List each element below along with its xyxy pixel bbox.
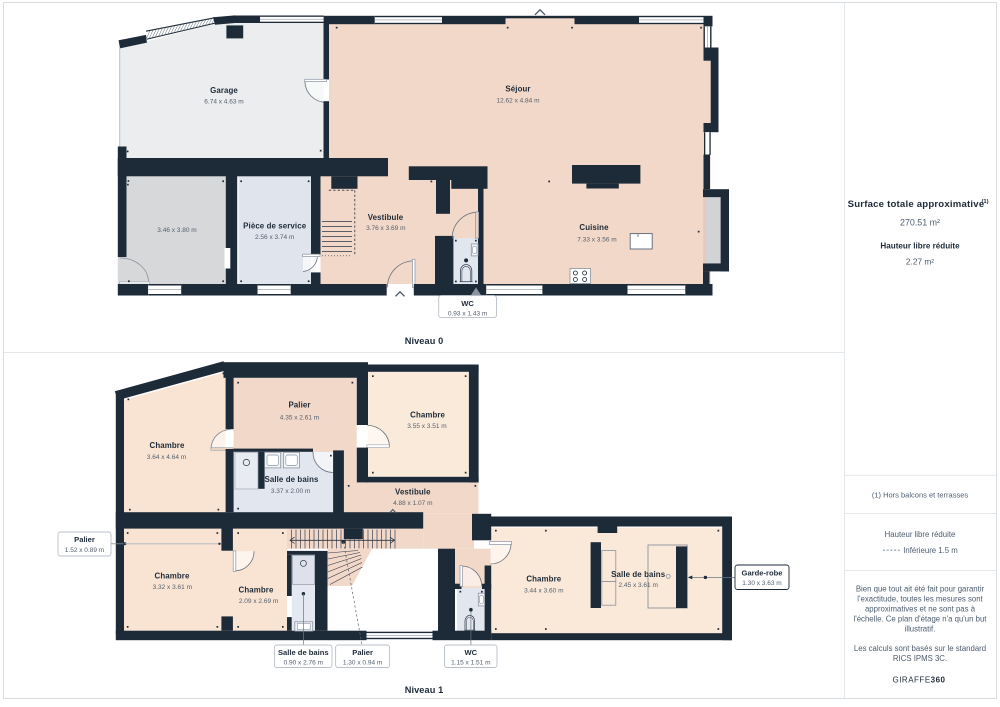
- svg-text:Pièce de service: Pièce de service: [243, 222, 307, 231]
- svg-text:Cuisine: Cuisine: [579, 223, 609, 232]
- svg-text:Palier: Palier: [288, 401, 310, 410]
- svg-text:4.88 x 1.07 m: 4.88 x 1.07 m: [393, 500, 432, 507]
- svg-text:3.46 x 3.80 m: 3.46 x 3.80 m: [157, 227, 196, 234]
- svg-text:Hauteur libre réduite: Hauteur libre réduite: [880, 242, 960, 251]
- svg-text:WC: WC: [461, 299, 474, 308]
- svg-text:6.74 x 4.63 m: 6.74 x 4.63 m: [204, 99, 243, 106]
- svg-text:Salle de bains: Salle de bains: [264, 475, 319, 484]
- svg-text:Hauteur libre réduite: Hauteur libre réduite: [885, 530, 956, 539]
- svg-text:2.27 m²: 2.27 m²: [906, 257, 934, 267]
- svg-text:270.51 m²: 270.51 m²: [900, 218, 940, 228]
- svg-text:Séjour: Séjour: [505, 85, 530, 94]
- svg-text:2.56 x 3.74 m: 2.56 x 3.74 m: [255, 234, 294, 241]
- svg-text:Palier: Palier: [74, 535, 95, 544]
- svg-text:Inférieure 1.5 m: Inférieure 1.5 m: [903, 546, 958, 555]
- svg-text:illustratif.: illustratif.: [905, 625, 936, 634]
- svg-text:3.76 x 3.69 m: 3.76 x 3.69 m: [366, 225, 405, 232]
- svg-text:Vestibule: Vestibule: [395, 487, 431, 496]
- svg-text:RICS IPMS 3C.: RICS IPMS 3C.: [893, 654, 947, 663]
- svg-text:12.62 x 4.84 m: 12.62 x 4.84 m: [497, 97, 540, 104]
- svg-text:Surface totale approximative: Surface totale approximative: [848, 199, 985, 210]
- svg-text:2.45 x 3.61 m: 2.45 x 3.61 m: [619, 582, 658, 589]
- svg-text:Chambre: Chambre: [155, 572, 190, 581]
- svg-text:(1) Hors balcons et terrasses: (1) Hors balcons et terrasses: [872, 490, 969, 499]
- svg-text:1.30 x 3.63 m: 1.30 x 3.63 m: [742, 580, 781, 587]
- svg-text:Salle de bains: Salle de bains: [278, 648, 329, 657]
- svg-text:3.37 x 2.00 m: 3.37 x 2.00 m: [271, 488, 310, 495]
- svg-text:1.30 x 0.94 m: 1.30 x 0.94 m: [343, 660, 382, 667]
- svg-text:(1): (1): [982, 199, 989, 205]
- svg-text:3.32 x 3.61 m: 3.32 x 3.61 m: [153, 584, 192, 591]
- svg-text:Chambre: Chambre: [410, 410, 445, 419]
- svg-text:0.90 x 2.76 m: 0.90 x 2.76 m: [284, 660, 323, 667]
- svg-text:3.64 x 4.64 m: 3.64 x 4.64 m: [147, 454, 186, 461]
- svg-text:Niveau 0: Niveau 0: [405, 336, 444, 346]
- svg-text:Bien que tout ait été fait pou: Bien que tout ait été fait pour garantir: [856, 585, 985, 594]
- svg-text:GIRAFFE360: GIRAFFE360: [892, 676, 945, 685]
- svg-text:3.44 x 3.60 m: 3.44 x 3.60 m: [524, 587, 563, 594]
- svg-text:Garage: Garage: [210, 86, 238, 95]
- svg-text:Palier: Palier: [352, 648, 373, 657]
- svg-text:7.33 x 3.56 m: 7.33 x 3.56 m: [577, 237, 616, 244]
- svg-text:2.09 x 2.69 m: 2.09 x 2.69 m: [239, 598, 278, 605]
- svg-text:Vestibule: Vestibule: [368, 213, 404, 222]
- svg-text:Garde-robe: Garde-robe: [742, 568, 783, 577]
- svg-text:WC: WC: [464, 648, 477, 657]
- svg-text:approximatives et ne sont pas: approximatives et ne sont pas à: [865, 605, 976, 614]
- svg-text:l'échelle. Ce plan d'étage n'a: l'échelle. Ce plan d'étage n'a qu'un but: [854, 615, 988, 624]
- svg-text:Niveau 1: Niveau 1: [405, 685, 444, 695]
- svg-text:Chambre: Chambre: [239, 585, 274, 594]
- svg-text:4.35 x 2.61 m: 4.35 x 2.61 m: [280, 414, 319, 421]
- svg-text:1.52 x 0.89 m: 1.52 x 0.89 m: [65, 547, 104, 554]
- svg-text:Salle de bains: Salle de bains: [611, 570, 666, 579]
- svg-text:l'exactitude, toutes les mesur: l'exactitude, toutes les mesures sont: [857, 595, 983, 604]
- svg-text:Chambre: Chambre: [150, 441, 185, 450]
- svg-text:0.93 x 1.43 m: 0.93 x 1.43 m: [448, 311, 487, 318]
- svg-text:1.15 x 1.51 m: 1.15 x 1.51 m: [451, 660, 490, 667]
- svg-text:3.55 x 3.51 m: 3.55 x 3.51 m: [407, 423, 446, 430]
- svg-text:Chambre: Chambre: [526, 575, 561, 584]
- svg-text:Les calculs sont basés sur le: Les calculs sont basés sur le standard: [854, 644, 986, 653]
